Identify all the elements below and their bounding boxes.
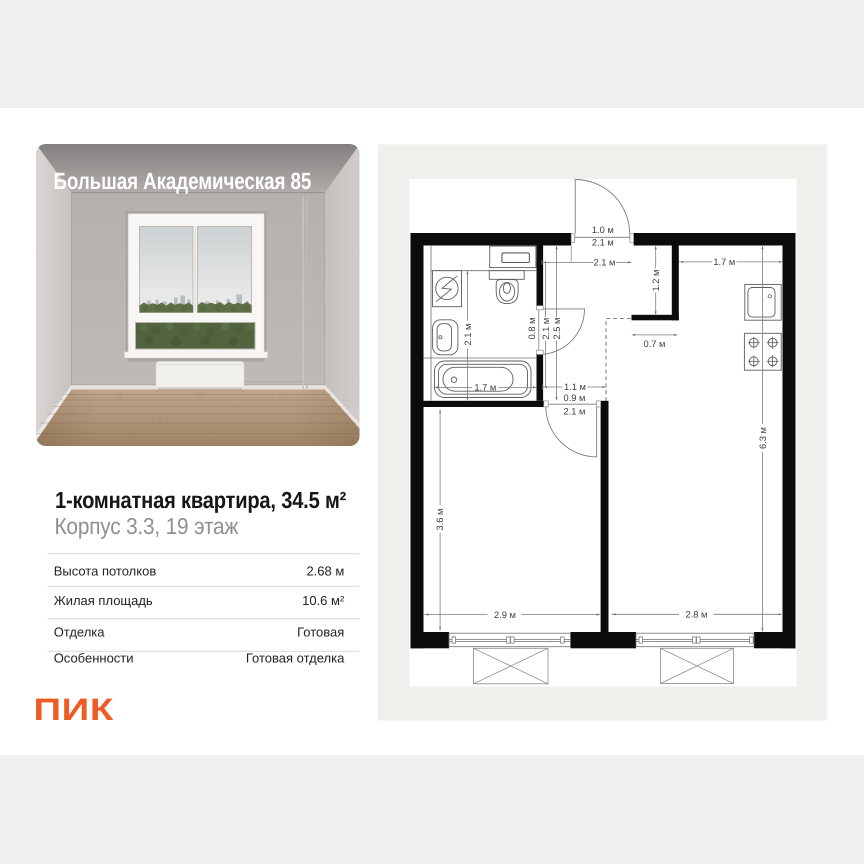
- svg-text:1.1 м: 1.1 м: [564, 382, 586, 392]
- svg-text:Отделка: Отделка: [54, 624, 106, 639]
- svg-text:3.6 м: 3.6 м: [435, 509, 445, 531]
- svg-text:Корпус 3.3, 19 этаж: Корпус 3.3, 19 этаж: [55, 513, 239, 539]
- svg-text:0.9 м: 0.9 м: [564, 393, 586, 403]
- svg-text:10.6 м²: 10.6 м²: [302, 593, 345, 608]
- svg-text:0.8 м: 0.8 м: [527, 317, 537, 339]
- svg-text:Готовая отделка: Готовая отделка: [246, 650, 345, 665]
- svg-text:ПИК: ПИК: [34, 692, 114, 727]
- svg-text:Большая Академическая 85: Большая Академическая 85: [54, 168, 312, 194]
- svg-text:2.5 м: 2.5 м: [552, 318, 562, 340]
- svg-text:Высота потолков: Высота потолков: [54, 564, 157, 579]
- svg-text:2.8 м: 2.8 м: [686, 610, 708, 620]
- svg-text:0.7 м: 0.7 м: [644, 339, 666, 349]
- svg-text:2.1 м: 2.1 м: [592, 238, 614, 248]
- svg-text:Готовая: Готовая: [297, 624, 344, 639]
- svg-text:Жилая площадь: Жилая площадь: [54, 593, 153, 608]
- svg-text:2.9 м: 2.9 м: [494, 610, 516, 620]
- svg-text:1-комнатная квартира, 34.5 м²: 1-комнатная квартира, 34.5 м²: [55, 487, 347, 513]
- svg-text:1.0 м: 1.0 м: [592, 225, 614, 235]
- svg-text:1.2 м: 1.2 м: [651, 270, 661, 292]
- svg-text:6.3 м: 6.3 м: [758, 427, 768, 449]
- svg-text:2.68 м: 2.68 м: [306, 564, 344, 579]
- svg-text:2.1 м: 2.1 м: [564, 406, 586, 416]
- svg-text:1.7 м: 1.7 м: [474, 383, 496, 393]
- svg-text:1.7 м: 1.7 м: [713, 257, 735, 267]
- svg-text:2.1 м: 2.1 м: [541, 318, 551, 340]
- svg-text:Особенности: Особенности: [54, 650, 134, 665]
- svg-text:2.1 м: 2.1 м: [463, 324, 473, 346]
- svg-text:2.1 м: 2.1 м: [594, 258, 616, 268]
